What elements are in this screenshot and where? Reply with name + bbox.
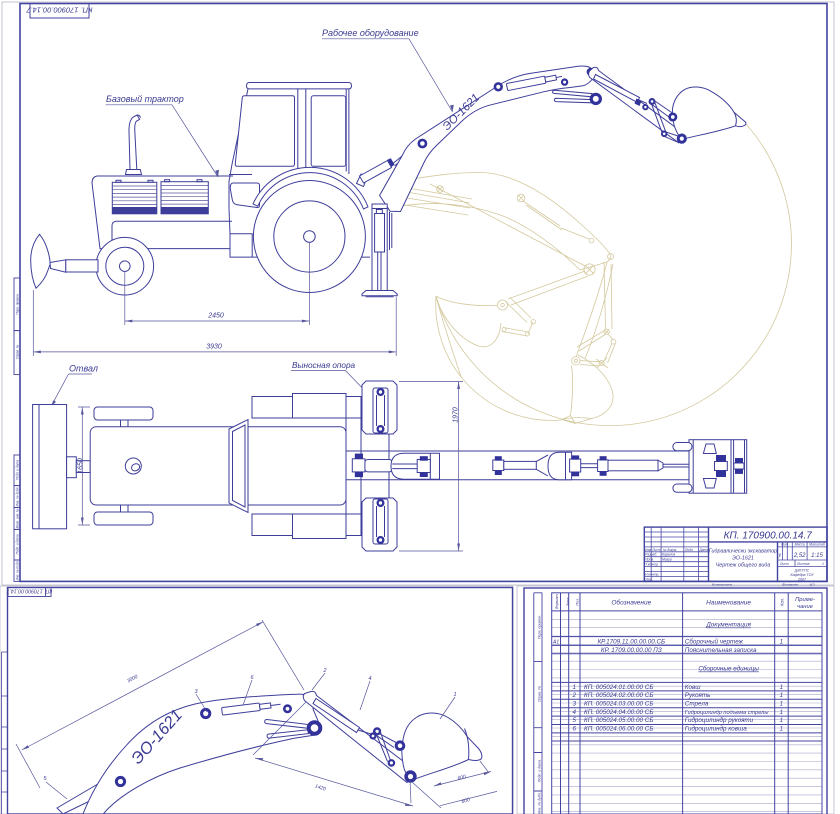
- svg-text:Пров.: Пров.: [645, 558, 654, 562]
- svg-text:6: 6: [573, 726, 577, 733]
- svg-text:ДВГУПС: ДВГУПС: [794, 569, 810, 573]
- svg-text:КР. 1709.00.00.00 ПЗ: КР. 1709.00.00.00 ПЗ: [601, 647, 662, 654]
- svg-text:КР.1709.11.00.00.00.СБ: КР.1709.11.00.00.00.СБ: [597, 639, 665, 646]
- svg-text:КП. 005024.04.00.00 СБ: КП. 005024.04.00.00 СБ: [584, 709, 653, 716]
- svg-text:Подп.: Подп.: [685, 548, 694, 552]
- svg-text:Кол.: Кол.: [780, 598, 785, 606]
- svg-text:1: 1: [822, 562, 824, 566]
- svg-text:А1: А1: [552, 640, 559, 646]
- svg-text:Гидроцилиндр подъема стрелы: Гидроцилиндр подъема стрелы: [685, 710, 769, 716]
- svg-text:Отвал: Отвал: [69, 364, 98, 374]
- svg-text:Выносная опора: Выносная опора: [292, 361, 356, 370]
- svg-text:Инв. № дубл.: Инв. № дубл.: [16, 487, 20, 507]
- svg-text:Рабочее оборудование: Рабочее оборудование: [322, 28, 419, 38]
- svg-text:Гидроцилиндр рукояти: Гидроцилиндр рукояти: [685, 716, 754, 724]
- svg-text:ЭО-1621: ЭО-1621: [732, 556, 754, 562]
- svg-text:Т.контр.: Т.контр.: [645, 563, 659, 567]
- svg-text:Подп. и дата: Подп. и дата: [538, 760, 542, 783]
- svg-text:Ковш: Ковш: [685, 684, 701, 691]
- svg-text:Мазур: Мазур: [662, 558, 672, 562]
- svg-text:Гидроцилиндр ковша: Гидроцилиндр ковша: [685, 725, 747, 733]
- svg-text:4: 4: [368, 676, 371, 682]
- svg-text:1: 1: [573, 684, 577, 691]
- svg-text:3930: 3930: [206, 344, 222, 351]
- svg-text:Листов: Листов: [796, 562, 810, 566]
- svg-text:1: 1: [780, 701, 784, 708]
- svg-text:Перв. примен.: Перв. примен.: [538, 615, 542, 639]
- svg-text:1: 1: [780, 692, 784, 699]
- svg-text:Лист: Лист: [651, 548, 661, 552]
- svg-text:Перв. примен.: Перв. примен.: [16, 293, 20, 314]
- svg-text:Взам. инв. №: Взам. инв. №: [16, 508, 20, 528]
- svg-text:КП. 170900.00.14.7: КП. 170900.00.14.7: [26, 6, 93, 15]
- svg-text:Поз.: Поз.: [576, 598, 580, 606]
- svg-text:2: 2: [322, 668, 326, 674]
- svg-text:Утв.: Утв.: [645, 577, 653, 581]
- svg-text:Базовый трактор: Базовый трактор: [106, 94, 184, 104]
- svg-text:Масса: Масса: [795, 543, 805, 547]
- svg-text:КП. 005024.06.00.00 СБ: КП. 005024.06.00.00 СБ: [584, 726, 653, 733]
- svg-text:КП. 170900.00.14.7: КП. 170900.00.14.7: [724, 531, 813, 542]
- svg-text:Лит.: Лит.: [780, 543, 789, 547]
- svg-text:Подп. и дата: Подп. и дата: [16, 534, 20, 554]
- svg-text:Подп. и дата: Подп. и дата: [16, 460, 20, 480]
- svg-text:Приме-: Приме-: [795, 597, 815, 603]
- svg-text:2: 2: [572, 692, 577, 699]
- svg-text:Документация: Документация: [705, 622, 751, 629]
- svg-text:Карелов: Карелов: [662, 553, 675, 557]
- svg-text:КП. 005024.02.00.00 СБ: КП. 005024.02.00.00 СБ: [584, 692, 653, 699]
- svg-text:Рукоять: Рукоять: [685, 692, 711, 699]
- svg-text:Сборочный чертеж: Сборочный чертеж: [685, 638, 744, 646]
- svg-text:Сборочные единицы: Сборочные единицы: [698, 665, 759, 673]
- svg-text:Обозначение: Обозначение: [611, 599, 651, 607]
- svg-text:КП. 005024.05.00.00 СБ: КП. 005024.05.00.00 СБ: [584, 717, 653, 724]
- svg-text:1: 1: [780, 684, 784, 691]
- svg-text:1970: 1970: [453, 407, 460, 423]
- svg-text:2450: 2450: [207, 313, 224, 320]
- svg-text:Чертеж общего вида: Чертеж общего вида: [716, 563, 771, 569]
- svg-text:1: 1: [453, 692, 456, 698]
- svg-text:Инв. № дубл.: Инв. № дубл.: [538, 792, 542, 814]
- svg-text:Лист: Лист: [779, 562, 789, 566]
- svg-text:КП. 005024.01.00.00 СБ: КП. 005024.01.00.00 СБ: [584, 684, 653, 691]
- svg-text:Зона: Зона: [566, 597, 570, 606]
- svg-text:1: 1: [780, 726, 784, 733]
- svg-text:Гидравлически экскаватор: Гидравлически экскаватор: [709, 549, 777, 555]
- svg-text:КП. 170900.00.14.7: КП. 170900.00.14.7: [6, 588, 53, 594]
- svg-text:5: 5: [573, 717, 577, 724]
- svg-text:1:15: 1:15: [811, 553, 823, 559]
- svg-text:1650: 1650: [78, 458, 85, 474]
- svg-text:4: 4: [573, 709, 577, 716]
- svg-text:Разраб.: Разраб.: [645, 553, 657, 557]
- svg-text:Пояснительная записка: Пояснительная записка: [685, 647, 757, 654]
- svg-text:1: 1: [780, 717, 784, 724]
- svg-text:1: 1: [780, 709, 784, 716]
- svg-text:Дата: Дата: [699, 548, 709, 552]
- svg-text:Справ. №: Справ. №: [16, 344, 20, 359]
- svg-text:Масштаб: Масштаб: [809, 543, 825, 547]
- svg-text:Инв. № подл.: Инв. № подл.: [16, 560, 20, 580]
- svg-text:Стрела: Стрела: [685, 701, 709, 708]
- svg-text:Наименование: Наименование: [706, 600, 751, 607]
- svg-text:Н.контр.: Н.контр.: [645, 572, 659, 576]
- svg-text:КП. 005024.03.00.00 СБ: КП. 005024.03.00.00 СБ: [584, 701, 653, 708]
- svg-text:2007: 2007: [797, 577, 807, 581]
- svg-text:Изм.: Изм.: [645, 548, 652, 552]
- svg-text:№ докум.: № докум.: [663, 548, 677, 552]
- svg-text:Справ. №: Справ. №: [538, 686, 542, 702]
- svg-text:1: 1: [780, 639, 784, 646]
- svg-text:2,52: 2,52: [793, 553, 806, 559]
- svg-text:3: 3: [573, 701, 577, 708]
- svg-text:чание: чание: [797, 604, 814, 610]
- svg-text:Формат: Формат: [555, 594, 559, 609]
- svg-text:у: у: [778, 553, 782, 559]
